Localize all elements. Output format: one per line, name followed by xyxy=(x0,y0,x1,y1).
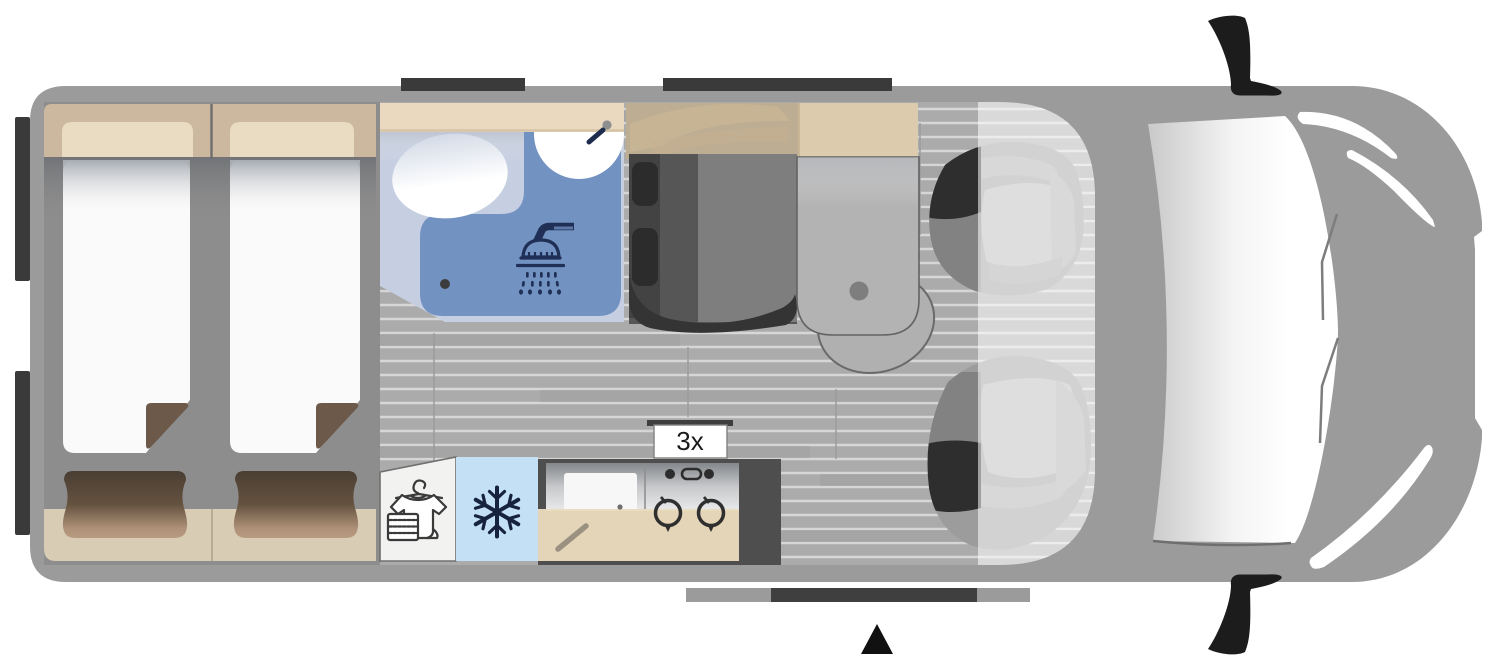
svg-text:3x: 3x xyxy=(676,426,703,456)
